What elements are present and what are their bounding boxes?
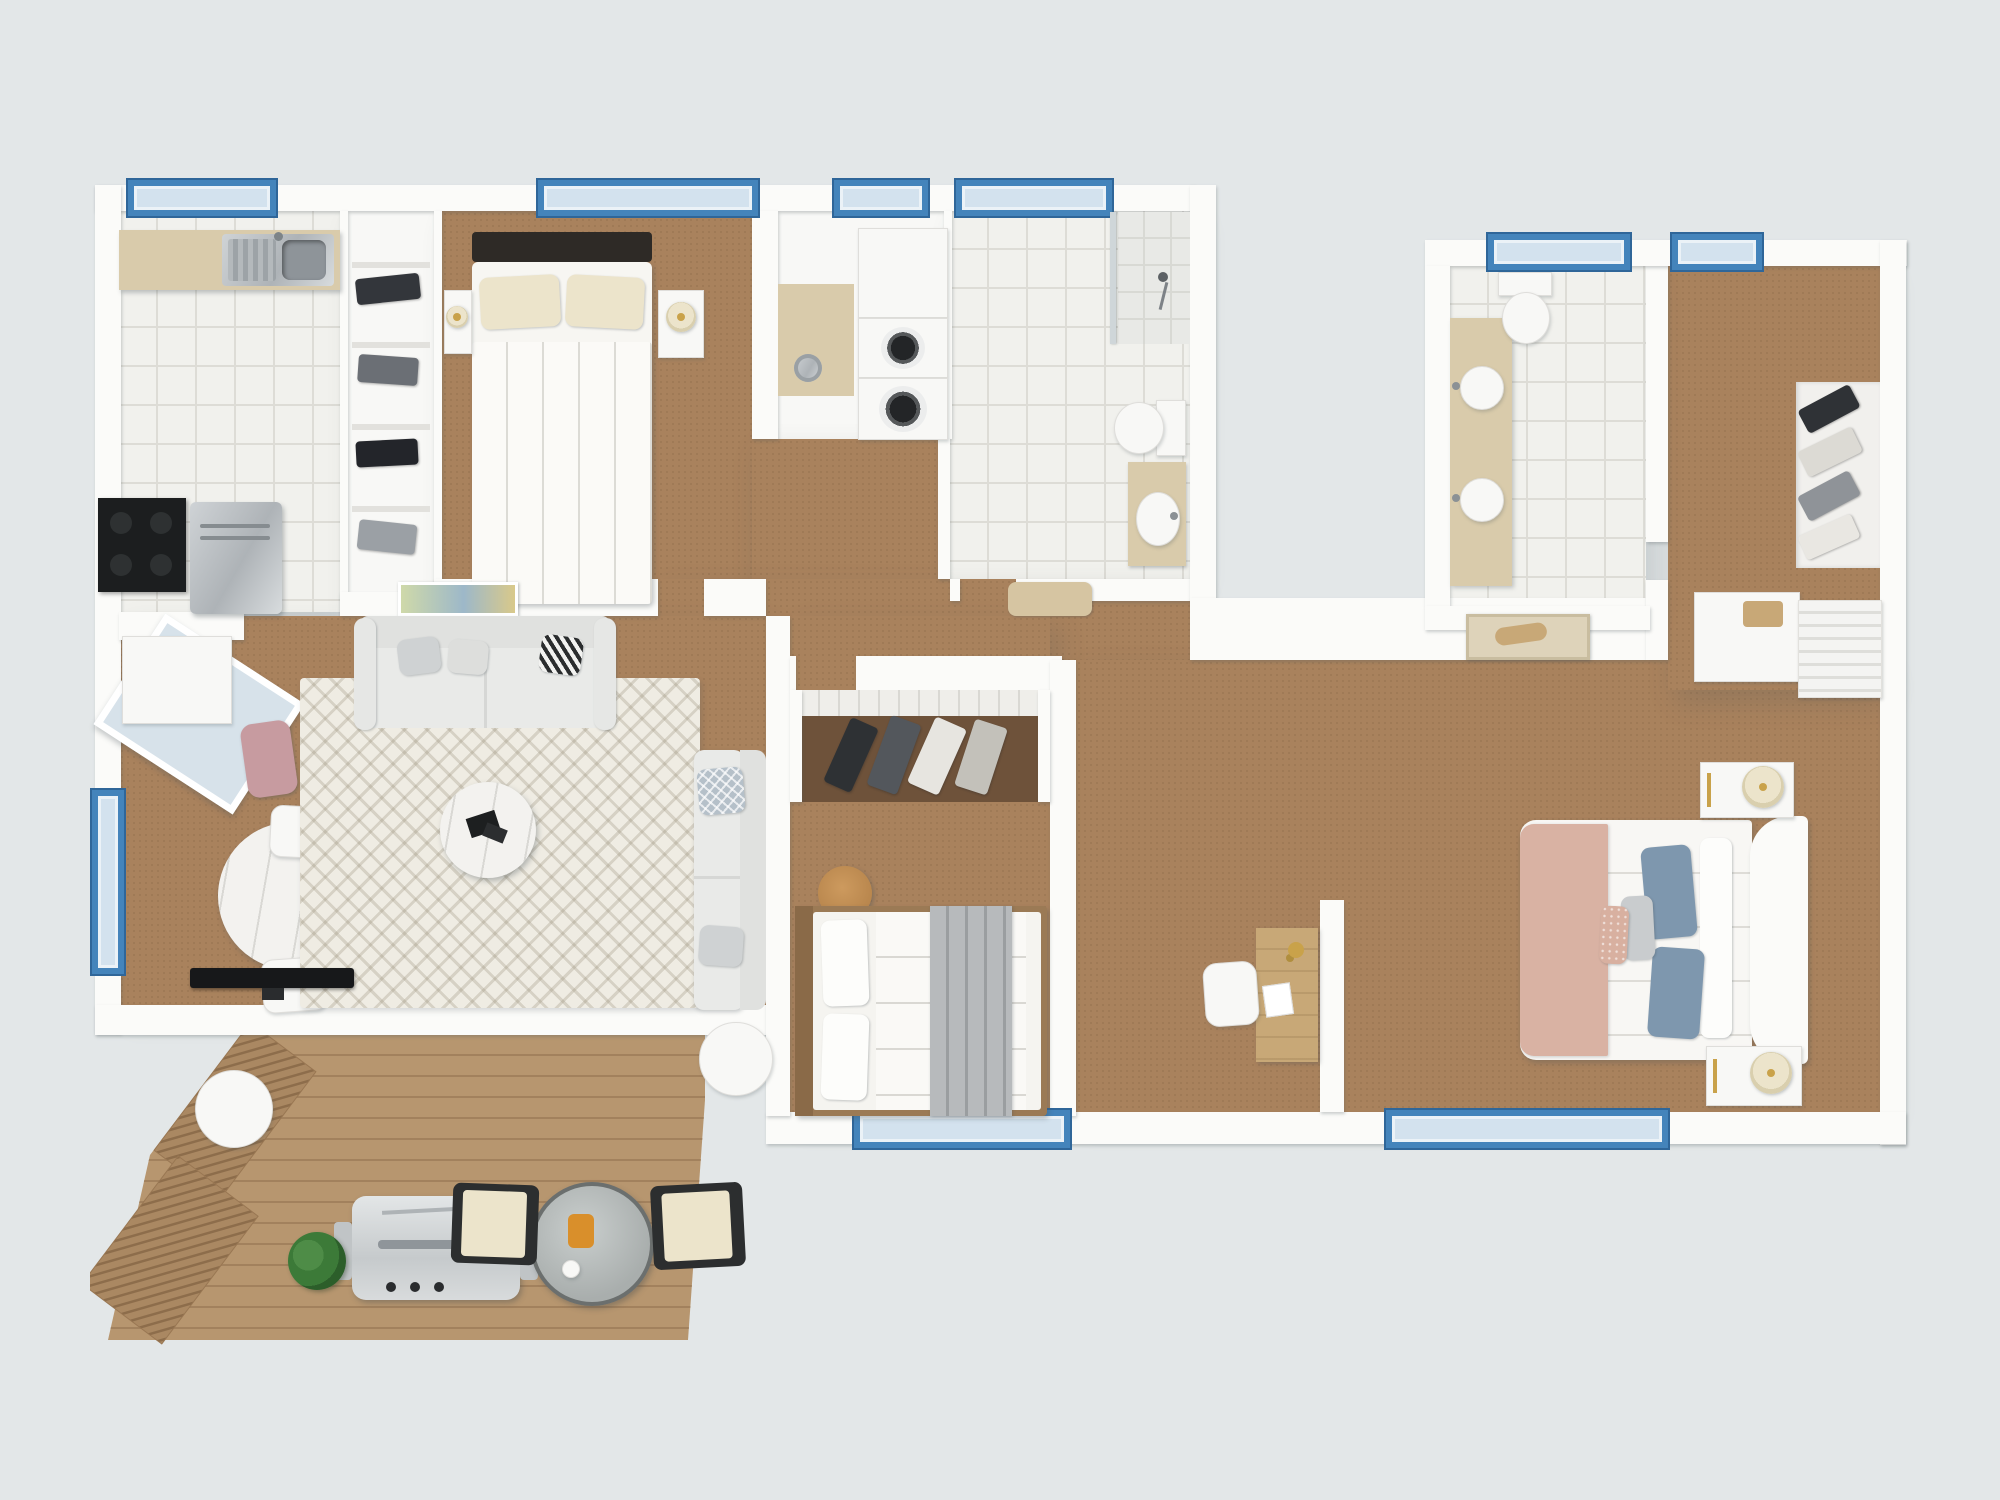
burner <box>110 554 132 576</box>
clothes-item <box>355 438 418 467</box>
hall1-floor <box>752 439 944 579</box>
outdoor-chair <box>650 1182 746 1271</box>
entry-art <box>1466 614 1590 660</box>
stove <box>98 498 186 592</box>
kitchen-window <box>128 180 276 216</box>
orange-tray <box>568 1214 594 1248</box>
dresser <box>1694 592 1800 682</box>
slatted-shelf <box>1798 600 1882 698</box>
desk-lamp <box>1288 942 1304 958</box>
bed2-pillow <box>821 919 870 1007</box>
bed3-blush-throw <box>1520 824 1608 1056</box>
sink2-faucet <box>1452 494 1460 502</box>
bed2-gray-blanket <box>930 906 1012 1116</box>
shower-area <box>1118 212 1190 344</box>
toilet1-bowl <box>1114 402 1164 454</box>
table-decor <box>482 822 508 843</box>
glass-table <box>530 1182 654 1306</box>
coffee-table <box>440 782 536 878</box>
wall-bath2-west <box>1425 266 1450 606</box>
cup <box>562 1260 580 1278</box>
wall-art <box>398 582 518 616</box>
clothes-item <box>357 519 418 555</box>
desk-paper <box>1262 982 1294 1018</box>
bed1-lamp-left <box>446 306 468 328</box>
closet-jamb <box>1038 690 1050 802</box>
burner <box>150 512 172 534</box>
sink-faucet <box>274 232 283 241</box>
bed3-headboard <box>1750 816 1808 1064</box>
sofa <box>360 616 610 734</box>
wall-bedroom2-north <box>856 656 1062 690</box>
bed3-white-pillow <box>1700 838 1732 1038</box>
bed1-headboard <box>472 232 652 262</box>
diamond-pillow <box>696 766 746 816</box>
wall-leftwing-east <box>1190 185 1216 599</box>
desk-chair <box>1202 960 1260 1028</box>
chair-cushion <box>461 1190 527 1258</box>
vanity2 <box>1450 318 1512 586</box>
entry-hall-window <box>1672 234 1762 270</box>
burner <box>150 554 172 576</box>
bed3-lamp-south <box>1750 1052 1792 1094</box>
bedroom1-window <box>538 180 758 216</box>
closet-shelf <box>352 424 430 430</box>
sideboard <box>122 636 232 724</box>
washer <box>858 318 948 378</box>
kitchen-sink <box>222 234 334 286</box>
chair-cushion <box>661 1190 732 1261</box>
fridge-handle <box>200 524 270 528</box>
wood-tray <box>1743 601 1783 627</box>
closet-shelf <box>352 342 430 348</box>
bed3-blush-pillow <box>1599 905 1630 964</box>
sink-basin <box>282 240 326 280</box>
wall-east <box>1880 240 1906 1145</box>
bed2-headboard <box>795 906 813 1116</box>
side-table <box>699 1022 773 1096</box>
sink-basin <box>228 239 276 281</box>
wall-bath1-west-stub <box>938 439 950 579</box>
wall-study-partition <box>1320 900 1344 1112</box>
bathroom1-window <box>956 180 1112 216</box>
bed1-pillow <box>565 274 646 330</box>
sink2 <box>1460 478 1504 522</box>
grill-knob <box>434 1282 444 1292</box>
living-side-window <box>92 790 124 974</box>
striped-pillow <box>538 633 585 676</box>
sofa-pillow <box>396 636 442 677</box>
fridge-handle <box>200 536 270 540</box>
bedroom3-window <box>1386 1110 1668 1148</box>
deck <box>90 1015 740 1355</box>
wall-bedroom2-north-stub <box>790 656 796 690</box>
pink-armchair <box>239 719 299 799</box>
wall-bedroom1-south-stub <box>704 579 766 616</box>
refrigerator <box>190 502 282 614</box>
shower-head <box>1158 272 1168 282</box>
toilet2-bowl <box>1502 292 1550 344</box>
wall-bedroom2-west <box>766 616 790 1116</box>
bed3-lamp-north <box>1742 766 1784 808</box>
wall-living-south <box>95 1005 767 1035</box>
floor-plan <box>0 0 2000 1500</box>
laundry-window <box>834 180 928 216</box>
sink1-faucet <box>1170 512 1178 520</box>
potted-plant <box>288 1232 346 1290</box>
sofa-arm <box>594 618 616 730</box>
sink2 <box>1460 366 1504 410</box>
dryer-door <box>879 386 927 432</box>
tv-stand <box>262 988 284 1000</box>
sofa-arm <box>354 618 376 730</box>
entry-art-motif <box>1494 621 1548 646</box>
gold-handle <box>1713 1059 1717 1093</box>
chaise-sofa <box>694 750 766 1010</box>
trash-bin <box>794 354 822 382</box>
washer-door <box>881 327 925 369</box>
wall-bedroom1-east <box>752 211 778 439</box>
wall-kitchen-closet <box>340 211 348 613</box>
sofa-pillow <box>447 638 490 675</box>
clothes-item <box>357 354 419 386</box>
shower-glass <box>1110 212 1116 344</box>
chaise-pillow <box>698 925 745 968</box>
wall-closet-bedroom1 <box>434 211 442 613</box>
grill-knob <box>386 1282 396 1292</box>
side-table <box>195 1070 273 1148</box>
bathroom2-window <box>1488 234 1630 270</box>
wall-hall-west-upper <box>1646 266 1668 542</box>
closet-shelf <box>352 262 430 268</box>
tv <box>190 968 354 988</box>
wall-bath1-south-stub <box>950 579 960 601</box>
outdoor-chair <box>451 1183 540 1266</box>
closet-jamb <box>790 690 802 802</box>
bed2-pillow <box>821 1013 870 1101</box>
bedroom2-closet-back <box>800 690 1050 716</box>
closet-shelf <box>352 506 430 512</box>
laundry-cabinet <box>858 228 948 318</box>
bath-mat <box>1008 582 1092 616</box>
grill-knob <box>410 1282 420 1292</box>
wall-bedroom2-east <box>1050 660 1076 1116</box>
sink2-faucet <box>1452 382 1460 390</box>
bed1-lamp-right <box>666 302 696 332</box>
dryer <box>858 378 948 440</box>
bed3-blue-pillow <box>1647 946 1705 1039</box>
burner <box>110 512 132 534</box>
bed1-duvet <box>472 342 652 604</box>
bed1-pillow <box>479 274 562 330</box>
gold-handle <box>1707 773 1711 807</box>
